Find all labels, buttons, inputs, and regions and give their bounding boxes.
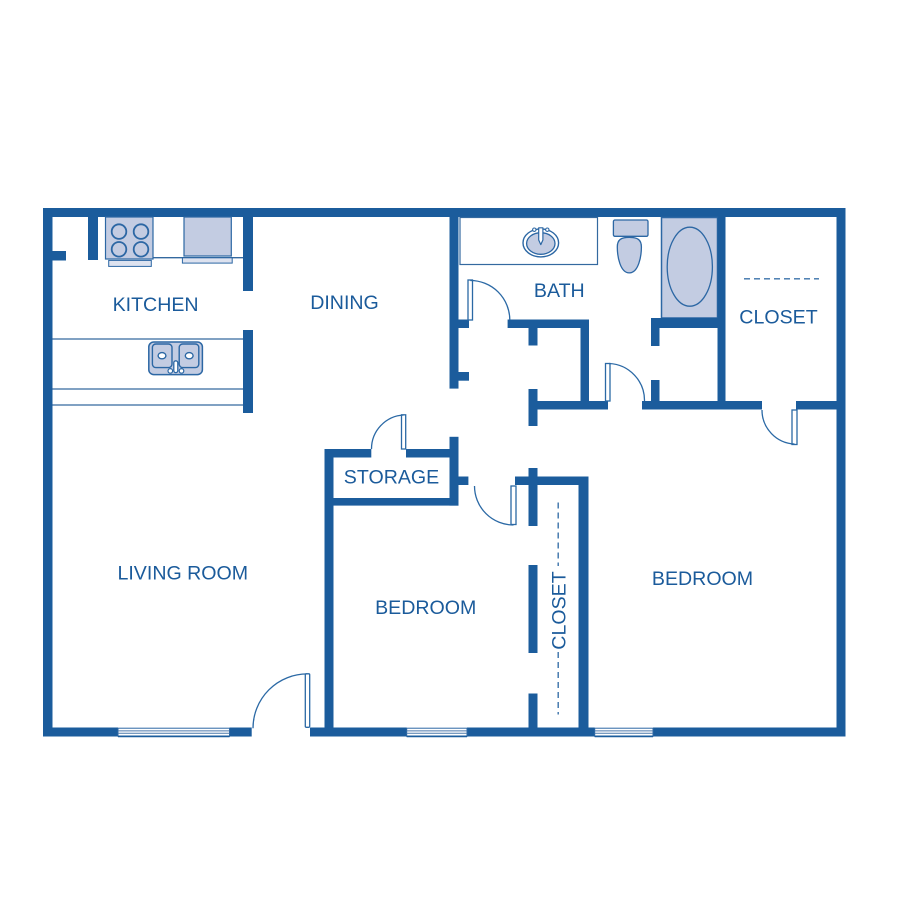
svg-text:DINING: DINING (310, 292, 379, 314)
svg-text:BATH: BATH (534, 280, 585, 302)
svg-text:BEDROOM: BEDROOM (652, 568, 753, 590)
svg-text:CLOSET: CLOSET (549, 571, 571, 649)
svg-text:LIVING ROOM: LIVING ROOM (117, 563, 248, 585)
svg-text:STORAGE: STORAGE (344, 467, 439, 489)
svg-text:BEDROOM: BEDROOM (375, 597, 476, 619)
svg-text:CLOSET: CLOSET (739, 306, 817, 328)
svg-text:KITCHEN: KITCHEN (113, 294, 199, 316)
